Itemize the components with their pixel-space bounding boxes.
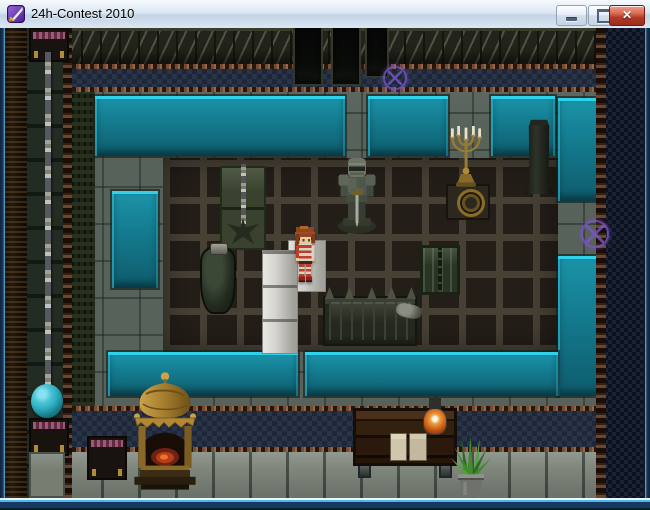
oil-lamp: [420, 386, 450, 440]
window-title: 24h-Contest 2010: [31, 6, 134, 22]
window-frame-bottom: [0, 498, 650, 510]
orb-pedestal: [29, 418, 69, 456]
teal-orb: [31, 384, 63, 418]
minimize-icon: [566, 17, 577, 21]
right-outer-wall: [596, 28, 645, 498]
water-pool-top-left: [95, 96, 345, 156]
small-altar-table: [87, 436, 127, 480]
moss-edge-strip: [72, 64, 95, 406]
close-button[interactable]: ✕: [609, 5, 645, 26]
left-outer-wall: [5, 28, 27, 498]
gold-candelabra: [444, 116, 488, 192]
minimize-button[interactable]: [556, 5, 587, 26]
potted-plant: [448, 433, 494, 498]
book: [390, 433, 407, 461]
water-pool-top-right-a: [368, 96, 448, 156]
rune-circle: [383, 66, 407, 90]
window-frame-left: [0, 28, 5, 498]
orb-stone-base: [29, 452, 65, 498]
sword-game-icon[interactable]: [7, 5, 25, 23]
wooden-crate: [420, 245, 460, 295]
hanging-chain-tiles: [220, 166, 266, 250]
dark-banner: [331, 28, 361, 86]
lamp-glass: [423, 408, 447, 435]
window-frame-right: [645, 28, 650, 498]
hanging-chain-left: [45, 52, 51, 386]
ceramic-jar: [200, 246, 236, 314]
game-viewport[interactable]: [5, 28, 645, 498]
gold-lantern-shrine: [126, 370, 204, 490]
knight-statue: [335, 150, 379, 234]
app-window: 24h-Contest 2010 ✕: [0, 0, 650, 510]
titlebar[interactable]: 24h-Contest 2010 ✕: [0, 0, 650, 29]
rune-circle: [581, 220, 609, 248]
dark-banner: [293, 28, 323, 86]
player-character: [290, 224, 320, 284]
close-icon: ✕: [622, 6, 632, 25]
water-pool-left: [112, 191, 158, 288]
